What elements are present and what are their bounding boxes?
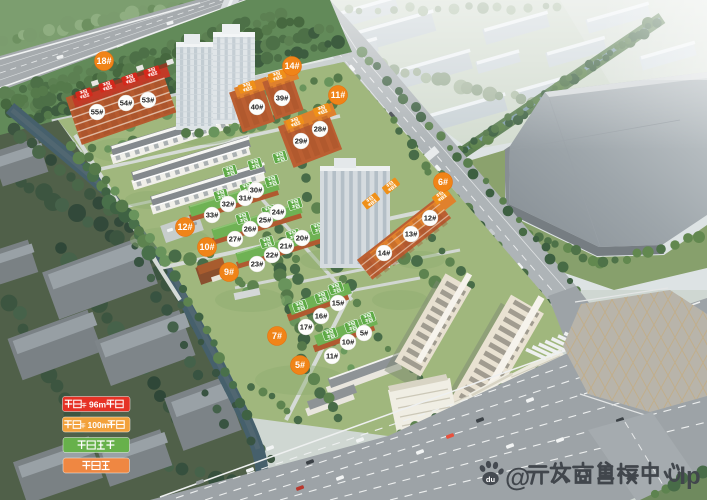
svg-text:28#: 28# xyxy=(314,125,327,134)
svg-text:26#: 26# xyxy=(244,225,257,234)
svg-text:30#: 30# xyxy=(250,186,263,195)
svg-text:12#: 12# xyxy=(424,214,437,223)
svg-text:5#: 5# xyxy=(360,329,369,338)
svg-text:10#: 10# xyxy=(199,242,214,252)
svg-text:96m²: 96m² xyxy=(89,399,109,409)
svg-text:53#: 53# xyxy=(142,96,155,105)
svg-text:du: du xyxy=(486,475,496,484)
svg-text:33#: 33# xyxy=(206,211,219,220)
svg-text:23#: 23# xyxy=(251,260,264,269)
svg-text:39#: 39# xyxy=(276,94,289,103)
svg-text:9#: 9# xyxy=(224,267,234,277)
svg-text:27#: 27# xyxy=(229,235,242,244)
svg-text:21#: 21# xyxy=(280,242,293,251)
svg-text:32#: 32# xyxy=(222,200,235,209)
svg-text:12#: 12# xyxy=(177,222,192,232)
svg-text:14#: 14# xyxy=(378,249,391,258)
svg-text:20#: 20# xyxy=(296,234,309,243)
svg-text:25#: 25# xyxy=(259,216,272,225)
svg-text:14#: 14# xyxy=(284,61,299,71)
svg-text:lp: lp xyxy=(679,463,700,490)
svg-text:29#: 29# xyxy=(295,137,308,146)
svg-text:54#: 54# xyxy=(120,99,133,108)
svg-text:22#: 22# xyxy=(266,251,279,260)
svg-text:24#: 24# xyxy=(272,208,285,217)
svg-text:13#: 13# xyxy=(405,230,418,239)
svg-text:10#: 10# xyxy=(342,338,355,347)
svg-text:5#: 5# xyxy=(295,360,305,370)
svg-text:18#: 18# xyxy=(96,56,111,66)
svg-text:11#: 11# xyxy=(326,352,339,361)
svg-text:11#: 11# xyxy=(331,90,346,100)
svg-text:6#: 6# xyxy=(438,177,448,187)
svg-text:40#: 40# xyxy=(251,103,264,112)
svg-text:16#: 16# xyxy=(315,312,328,321)
svg-text:15#: 15# xyxy=(332,299,345,308)
svg-text:7#: 7# xyxy=(272,331,282,341)
svg-text:17#: 17# xyxy=(300,323,313,332)
svg-text:@: @ xyxy=(505,462,530,492)
svg-text:55#: 55# xyxy=(91,108,104,117)
